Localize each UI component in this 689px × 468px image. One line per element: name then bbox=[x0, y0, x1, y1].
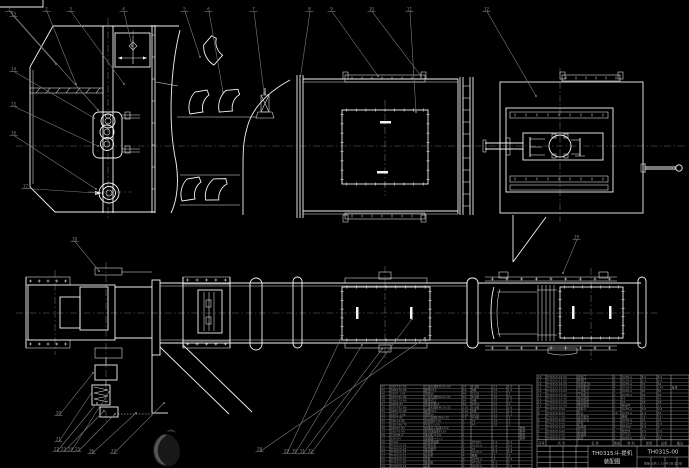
bom-cell: 18 bbox=[642, 436, 646, 440]
bom-cell: 机架 bbox=[578, 436, 584, 440]
drive-plan bbox=[92, 348, 152, 417]
leader-line bbox=[209, 12, 223, 93]
leader-dot bbox=[562, 272, 564, 274]
product-title: TH0315斗-提机 bbox=[591, 449, 633, 457]
bom-cell: TH0315-1-00 bbox=[546, 436, 566, 440]
boot-section bbox=[30, 25, 179, 213]
balloon-number: 13 bbox=[11, 12, 17, 17]
leader-dot bbox=[415, 111, 417, 113]
leader-line bbox=[287, 336, 342, 454]
bom-cell: 19 bbox=[381, 464, 385, 468]
bom-cell: 1 bbox=[614, 436, 616, 440]
upper-view bbox=[30, 25, 682, 262]
leader-dot bbox=[163, 402, 165, 404]
leader-dot bbox=[135, 412, 137, 414]
leader-dot bbox=[420, 75, 422, 77]
leader-line bbox=[300, 12, 310, 81]
sheet-type-label: 装配图 bbox=[604, 458, 621, 466]
leader-dot bbox=[131, 45, 133, 47]
balloon-number: 8 bbox=[308, 7, 311, 12]
leader-dot bbox=[424, 337, 426, 339]
leader-line bbox=[92, 413, 136, 454]
bom-row: 28Y160M-4电动机11kW1购件 bbox=[381, 433, 525, 437]
bom-cell: .05 bbox=[493, 423, 498, 427]
leader-dot bbox=[95, 188, 97, 190]
balloon-number: 25 bbox=[75, 447, 81, 452]
leader-dot bbox=[55, 63, 57, 65]
balloon-number: 32 bbox=[308, 449, 314, 454]
leader-dot bbox=[123, 83, 125, 85]
drawing-number: TH0315-00 bbox=[647, 450, 679, 456]
takeup-assembly bbox=[93, 33, 150, 203]
leader-dot bbox=[361, 344, 363, 346]
bom-row: 19TH0315-19盖板2Q235-A1.63.2 bbox=[381, 464, 512, 468]
bom-cell: 45 bbox=[472, 423, 476, 427]
bom-header-cell: 总重 bbox=[661, 440, 668, 445]
title-block: TH0315斗-提机 装配图 TH0315-00 质量 比例 1:10 共1张 … bbox=[537, 446, 689, 468]
leader-line bbox=[487, 12, 536, 97]
leader-dot bbox=[381, 348, 383, 350]
leader-line bbox=[332, 12, 378, 77]
balloon-number: 2 bbox=[45, 7, 48, 12]
leader-dot bbox=[97, 109, 99, 111]
leader-dot bbox=[199, 56, 201, 58]
bom-cell: 1 bbox=[538, 436, 540, 440]
balloon-number: 27 bbox=[111, 449, 117, 454]
balloon-number: 24 bbox=[68, 447, 74, 452]
leader-line bbox=[124, 12, 132, 47]
leader-line bbox=[59, 373, 93, 416]
leader-dot bbox=[222, 91, 224, 93]
bom-header-cell: 序号 bbox=[538, 440, 544, 445]
leader-dot bbox=[108, 391, 110, 393]
leader-dot bbox=[377, 75, 379, 77]
leader-line bbox=[254, 12, 264, 94]
bom-cell: 购件 bbox=[520, 436, 526, 440]
bom-header-cell: 代 号 bbox=[558, 440, 565, 445]
balloon-number: 19 bbox=[574, 235, 580, 240]
bom-cell: 1.6 bbox=[493, 464, 498, 468]
leader-dot bbox=[96, 402, 98, 404]
balloon-number: 3 bbox=[69, 7, 72, 12]
leader-line bbox=[47, 12, 76, 85]
leader-line bbox=[563, 240, 577, 274]
drawing-number-subrow: 质量 比例 1:10 共1张 第1张 bbox=[644, 461, 682, 466]
leader-dot bbox=[93, 117, 95, 119]
leader-line bbox=[14, 107, 98, 147]
cad-sheet: 1234567891011121314151617181920212223242… bbox=[0, 0, 689, 468]
casing-middle bbox=[303, 72, 458, 222]
bom-header-cell: 单重 bbox=[646, 440, 653, 445]
leader-line bbox=[410, 12, 416, 113]
head-section bbox=[460, 72, 682, 262]
bom-header-cell: 材 料 bbox=[627, 440, 635, 445]
bom-header-cell: 备注 bbox=[677, 440, 684, 445]
bom-table-right: 18TH0315-18-00出料口1Q235-A8.58.517TH0315-1… bbox=[537, 375, 689, 446]
stamp-blob bbox=[153, 429, 180, 466]
bom-cell: 3.2 bbox=[508, 464, 513, 468]
bom-table-left: 42GB5782-86六角头螺栓M16×60248.8级.112.641GB61… bbox=[381, 385, 533, 468]
leader-dot bbox=[299, 79, 301, 81]
bom-cell: 2 bbox=[463, 464, 465, 468]
balloon-number: 20 bbox=[56, 411, 62, 416]
leader-dot bbox=[98, 270, 100, 272]
casing-plan bbox=[160, 277, 467, 350]
leader-line bbox=[14, 136, 96, 190]
bom-cell: 备用 bbox=[672, 386, 678, 390]
balloon-number: 10 bbox=[369, 7, 375, 12]
leader-dot bbox=[103, 410, 105, 412]
leader-dot bbox=[341, 335, 343, 337]
leader-dot bbox=[92, 372, 94, 374]
leader-line bbox=[14, 72, 94, 119]
balloon-number: 26 bbox=[89, 449, 95, 454]
balloon-number: 6 bbox=[207, 7, 210, 12]
balloon-number: 7 bbox=[252, 7, 255, 12]
leader-dot bbox=[97, 145, 99, 147]
leader-line bbox=[185, 12, 200, 58]
balloon-number: 12 bbox=[484, 7, 490, 12]
bucket-chain bbox=[171, 30, 303, 218]
leader-line bbox=[71, 12, 124, 85]
sheet-border-fragment bbox=[0, 0, 43, 7]
leader-dot bbox=[75, 83, 77, 85]
leader-line bbox=[303, 349, 382, 454]
balloon-number: 17 bbox=[23, 184, 29, 189]
leader-dot bbox=[95, 192, 97, 194]
inlet-box bbox=[560, 287, 623, 338]
leader-dot bbox=[91, 391, 93, 393]
leader-line bbox=[14, 17, 56, 65]
bom-row: 1TH0315-1-00机架1Q235-A1818 bbox=[538, 436, 662, 440]
balloon-number: 18 bbox=[72, 237, 78, 242]
bom-cell: .1 bbox=[508, 423, 511, 427]
balloon-number: 15 bbox=[11, 102, 17, 107]
balloon-number: 9 bbox=[330, 7, 333, 12]
balloon-number: 28 bbox=[257, 447, 263, 452]
bom-cell: Q235-A bbox=[622, 436, 632, 440]
leader-dot bbox=[263, 92, 265, 94]
bom-header-cell: 数量 bbox=[614, 440, 621, 445]
leader-line bbox=[59, 392, 92, 442]
balloon-number: 22 bbox=[54, 447, 60, 452]
cad-drawing-canvas[interactable]: 1234567891011121314151617181920212223242… bbox=[0, 0, 689, 468]
bom-cell: 盖板 bbox=[425, 464, 431, 468]
leader-dot bbox=[411, 318, 413, 320]
leader-dot bbox=[114, 413, 116, 415]
balloon-number: 31 bbox=[300, 449, 306, 454]
leader-line bbox=[71, 392, 109, 452]
bom-row: 27ZQ40-Ⅱ减速器i=31.51购件 bbox=[381, 436, 525, 440]
balloon-number: 5 bbox=[183, 7, 186, 12]
tail-plan bbox=[467, 272, 646, 355]
balloon-number: 29 bbox=[284, 449, 290, 454]
leader-line bbox=[26, 189, 96, 194]
balloon-number: 11 bbox=[407, 7, 413, 12]
balloon-number: 4 bbox=[122, 7, 125, 12]
bom-cell: Q235-A bbox=[472, 464, 482, 468]
bom-cell: 18 bbox=[658, 436, 662, 440]
leader-line bbox=[75, 242, 99, 272]
leader-line bbox=[372, 12, 421, 77]
balloon-number: 30 bbox=[292, 449, 298, 454]
leader-dot bbox=[535, 95, 537, 97]
balloon-number: 14 bbox=[11, 67, 17, 72]
balloon-number: 23 bbox=[61, 447, 67, 452]
bom-cell: TH0315-19 bbox=[390, 464, 407, 468]
balloon-number: 21 bbox=[56, 437, 62, 442]
bom-header-cell: 名 称 bbox=[591, 440, 599, 445]
balloon-number: 16 bbox=[11, 131, 17, 136]
